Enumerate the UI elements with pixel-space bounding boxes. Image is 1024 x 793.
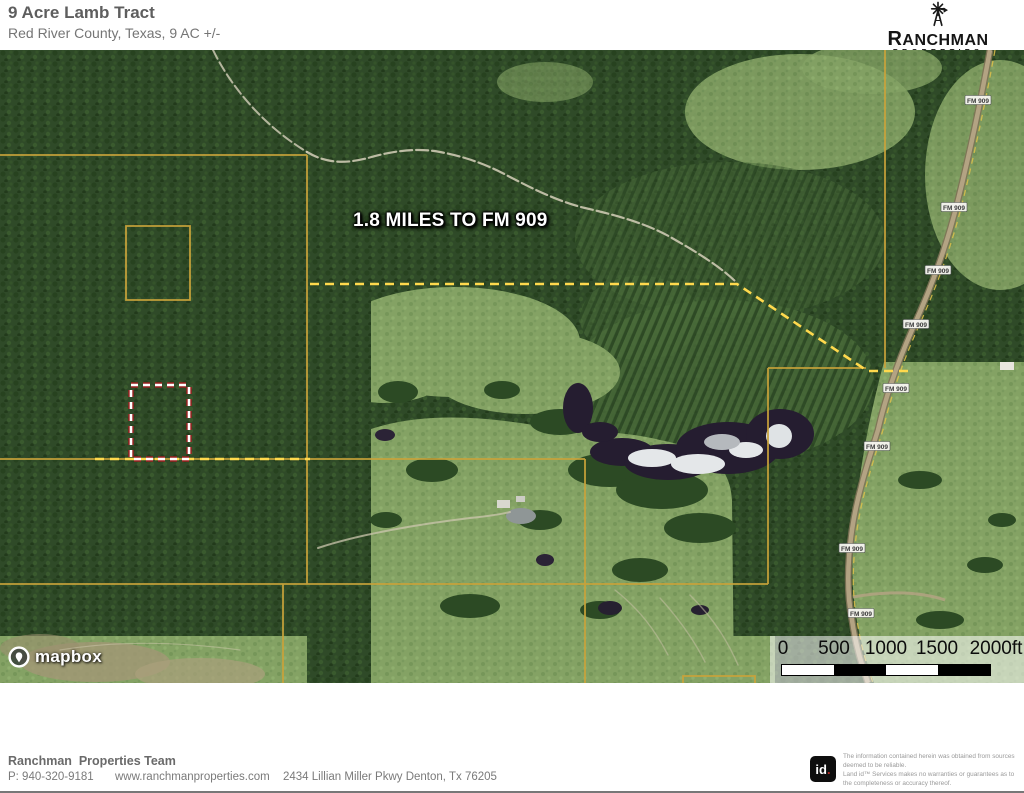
road-label: FM 909 — [967, 98, 989, 105]
scale-label: 0 — [778, 638, 789, 660]
disclaimer-line-2: Land id™ Services makes no warranties or… — [843, 771, 1021, 789]
road-label: FM 909 — [866, 444, 888, 451]
road-label: FM 909 — [927, 268, 949, 275]
company-name: Ranchman Properties Team — [8, 754, 176, 768]
map-svg: FM 909 FM 909 FM 909 FM 909 FM 909 FM 90… — [0, 50, 1024, 683]
map-terrain — [0, 50, 1024, 683]
property-flyer: 9 Acre Lamb Tract Red River County, Texa… — [0, 0, 1024, 793]
mapbox-logo[interactable]: mapbox — [8, 646, 102, 668]
landid-logo-text: id — [815, 762, 827, 777]
road-label: FM 909 — [905, 322, 927, 329]
mapbox-wordmark: mapbox — [35, 647, 102, 667]
office-address: 2434 Lillian Miller Pkwy Denton, Tx 7620… — [283, 771, 497, 783]
road-label: FM 909 — [841, 546, 863, 553]
scale-bar: 0 500 1000 1500 2000ft — [770, 636, 1024, 683]
website-link[interactable]: www.ranchmanproperties.com — [115, 771, 270, 783]
road-label: FM 909 — [943, 205, 965, 212]
disclaimer-text: The information contained herein was obt… — [843, 753, 1021, 789]
disclaimer-line-1: The information contained herein was obt… — [843, 753, 1021, 771]
scale-label: 2000ft — [970, 638, 1023, 660]
map: FM 909 FM 909 FM 909 FM 909 FM 909 FM 90… — [0, 50, 1024, 683]
footer: Ranchman Properties Team P: 940-320-9181… — [0, 745, 1024, 789]
header: 9 Acre Lamb Tract Red River County, Texa… — [0, 0, 1024, 50]
scale-bar-segments — [781, 664, 991, 676]
distance-annotation: 1.8 MILES TO FM 909 — [353, 210, 548, 232]
landid-logo-dot: . — [827, 762, 831, 777]
scale-label: 500 — [818, 638, 850, 660]
landid-logo: id. — [810, 756, 836, 782]
road-label: FM 909 — [850, 611, 872, 618]
road-label: FM 909 — [885, 386, 907, 393]
page-title: 9 Acre Lamb Tract — [8, 3, 155, 23]
windmill-icon — [925, 1, 951, 27]
scale-label: 1500 — [916, 638, 958, 660]
map-legend: Road / Trail Boundary Boundary — [0, 683, 1024, 725]
scale-label: 1000 — [865, 638, 907, 660]
logo-brand-text: RANCHMAN — [878, 32, 998, 48]
phone-number: P: 940-320-9181 — [8, 771, 94, 783]
mapbox-icon — [8, 646, 30, 668]
page-subtitle: Red River County, Texas, 9 AC +/- — [8, 25, 220, 41]
